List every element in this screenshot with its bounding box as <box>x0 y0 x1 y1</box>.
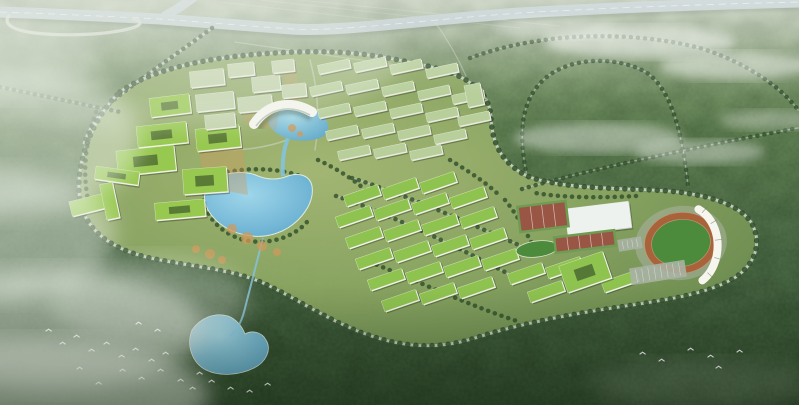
cloud <box>493 17 613 39</box>
plaza-circle <box>273 248 281 256</box>
masterplan-scene <box>0 0 799 405</box>
plaza-circle <box>288 124 296 132</box>
plaza-circle <box>227 224 237 234</box>
cloud <box>635 140 765 164</box>
plaza-circle <box>205 249 215 259</box>
plaza-circle <box>192 245 200 253</box>
aerial-rendering <box>0 0 799 405</box>
plaza-circle <box>297 131 303 137</box>
bottom-vignette <box>0 285 799 405</box>
plaza-circle <box>241 232 253 244</box>
plaza-circle <box>257 241 267 251</box>
plaza-circle <box>218 256 226 264</box>
